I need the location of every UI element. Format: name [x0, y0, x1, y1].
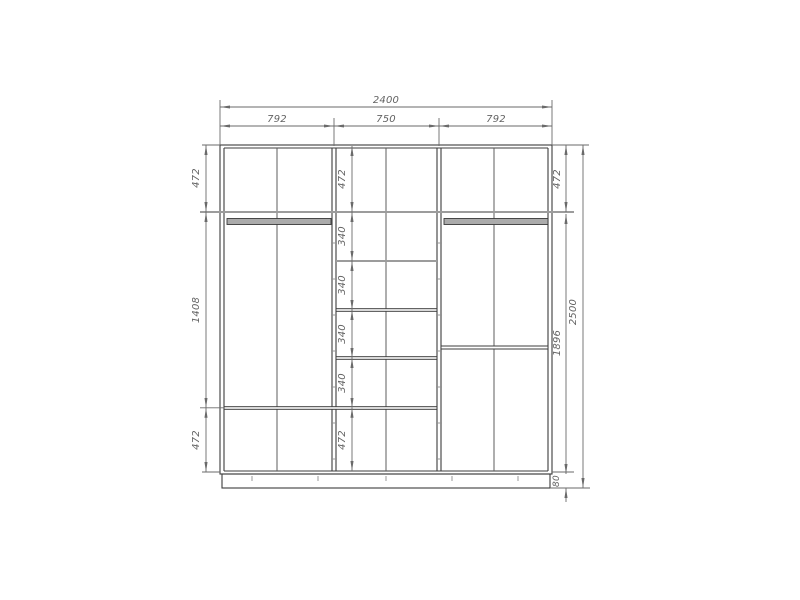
dim-top: 2400 792 750 792: [220, 95, 552, 146]
dim-right: 472 1896 80 2500: [550, 145, 590, 502]
wardrobe-dimension-drawing: 2400 792 750 792 472 1408 472 472 340 34…: [0, 0, 800, 600]
dim-total-width: 2400: [373, 95, 399, 106]
hanging-rods: [227, 219, 548, 225]
dim-right-plinth: 80: [552, 475, 562, 487]
dim-section-left: 792: [267, 114, 287, 125]
dim-left-top: 472: [191, 168, 202, 188]
plinth: [222, 474, 550, 488]
shelves: [200, 212, 574, 409]
dim-right-middle: 1896: [552, 330, 563, 356]
dim-section-right: 792: [486, 114, 506, 125]
dim-center-6: 472: [337, 430, 348, 450]
dim-left: 472 1408 472: [191, 145, 224, 472]
dim-left-bottom: 472: [191, 430, 202, 450]
drawing-canvas: 2400 792 750 792 472 1408 472 472 340 34…: [0, 0, 800, 600]
dim-center-5: 340: [337, 373, 348, 393]
dim-center-4: 340: [337, 324, 348, 344]
dim-left-middle: 1408: [191, 297, 202, 323]
dim-total-height: 2500: [568, 299, 579, 325]
dim-center-2: 340: [337, 226, 348, 246]
dim-right-top: 472: [552, 169, 563, 189]
right-hanging-rod: [444, 219, 548, 225]
dim-center-1: 472: [337, 169, 348, 189]
left-hanging-rod: [227, 219, 331, 225]
dim-center-3: 340: [337, 275, 348, 295]
dim-section-center: 750: [376, 114, 396, 125]
